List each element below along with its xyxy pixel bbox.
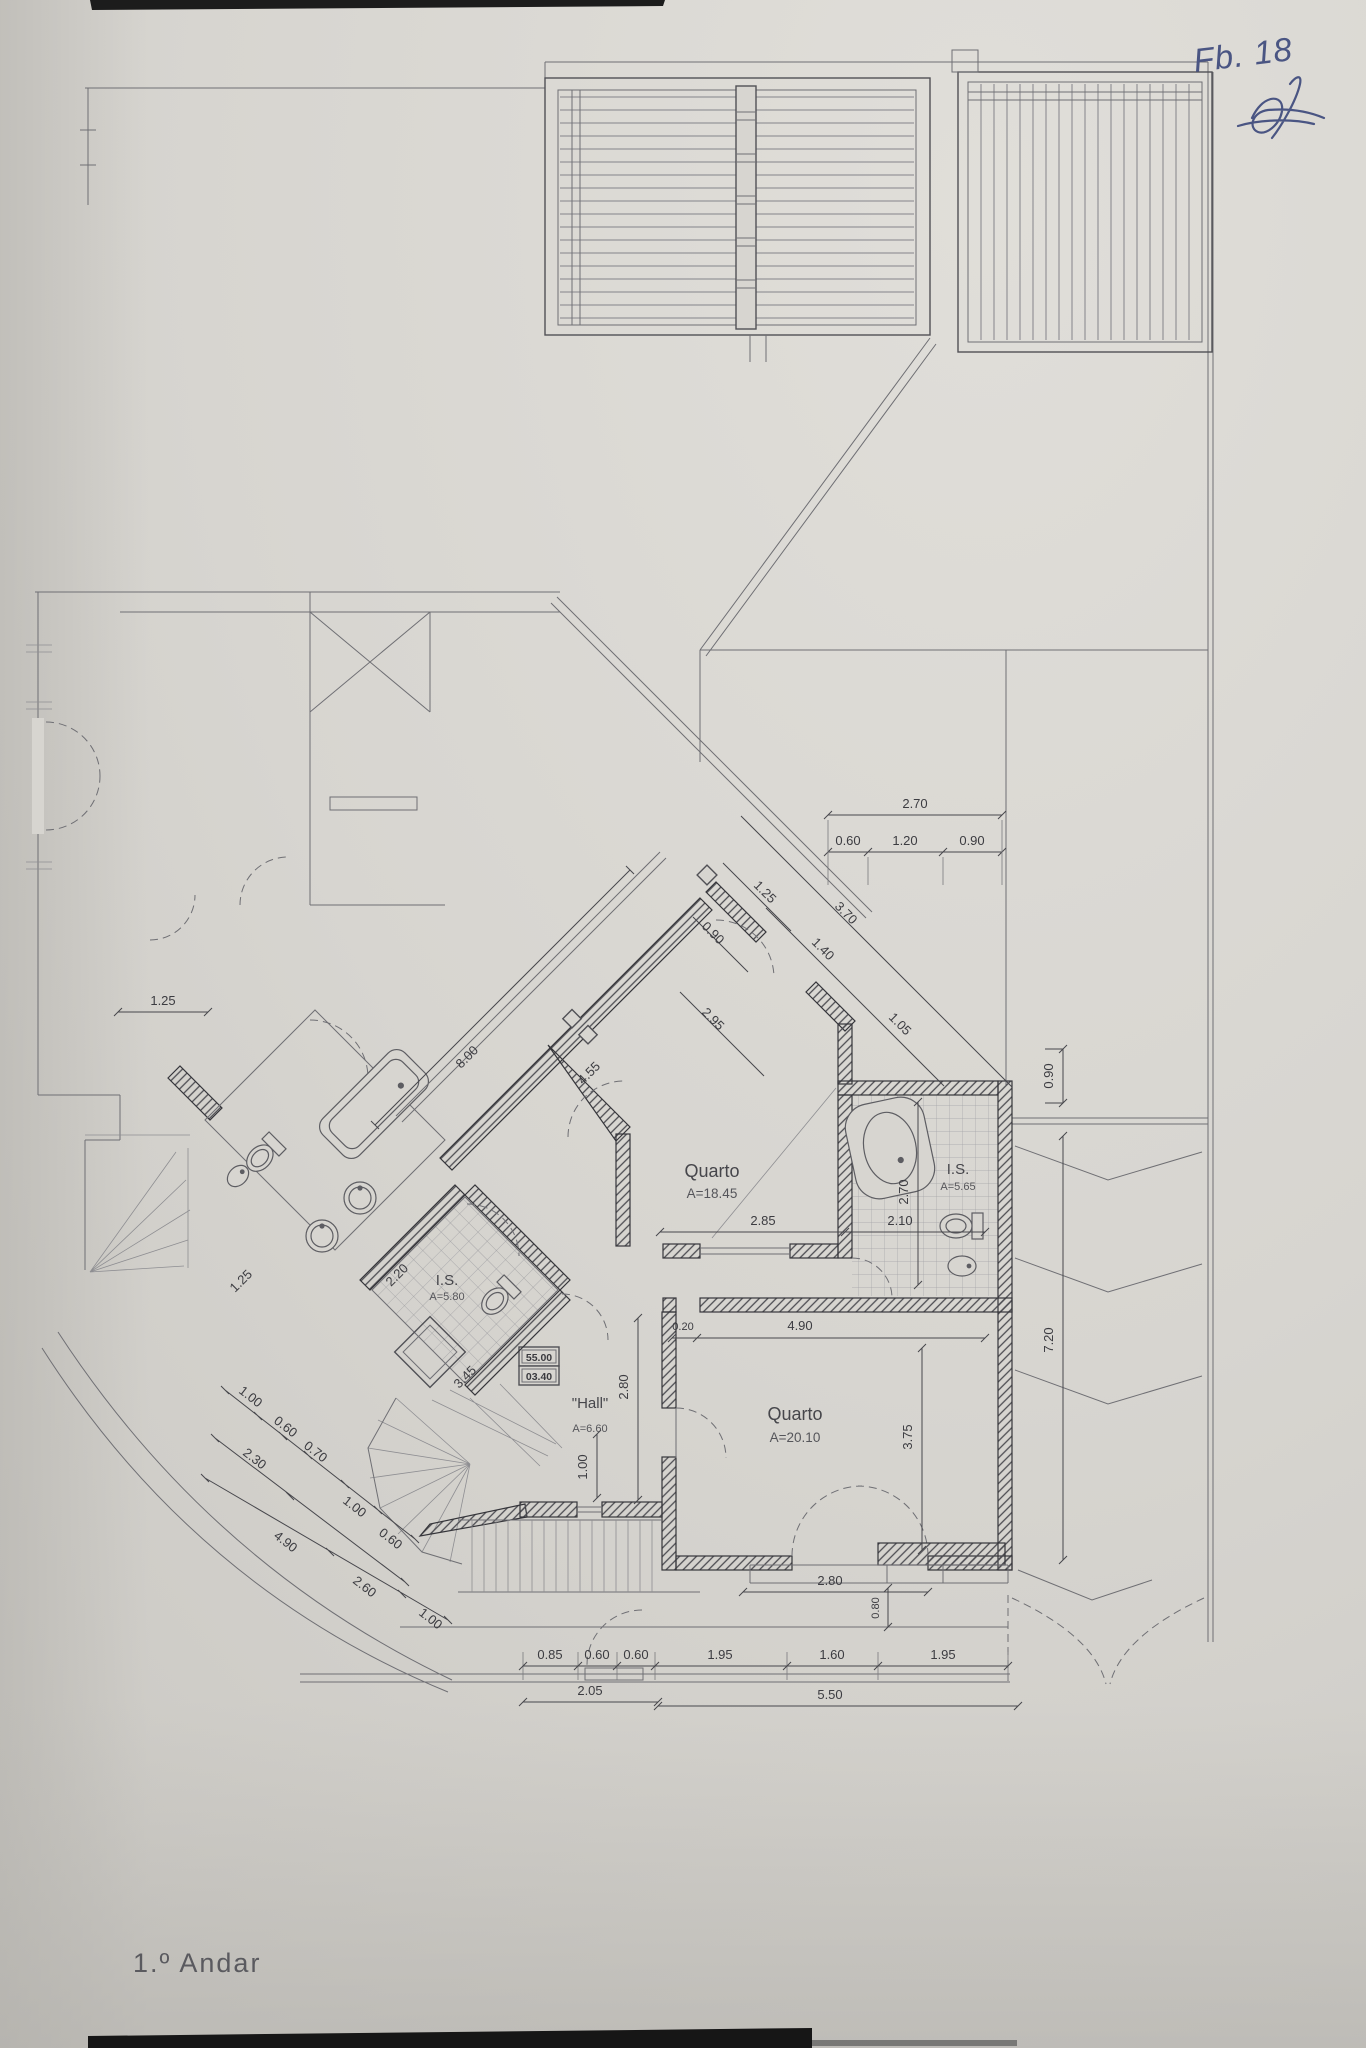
dim-090c: 0.90 [1041, 1063, 1056, 1088]
dim-280b: 2.80 [817, 1573, 842, 1588]
pergola-left [545, 78, 930, 362]
room-label-hall: "Hall" [572, 1395, 609, 1412]
dim-720: 7.20 [1041, 1327, 1056, 1352]
room-area-hall: A=6.60 [572, 1423, 607, 1435]
room-label-is1: I.S. [436, 1272, 459, 1289]
bidet [948, 1256, 976, 1276]
dim-205: 2.05 [577, 1683, 602, 1698]
room-label-quarto1: Quarto [684, 1161, 739, 1181]
dim-080: 0.80 [870, 1597, 882, 1618]
dim-490a: 4.90 [787, 1318, 812, 1333]
dim-285: 2.85 [750, 1213, 775, 1228]
floor-plan-drawing: Quarto A=18.45 I.S. A=5.65 Quarto A=20.1… [0, 0, 1366, 2048]
dim-280v: 2.80 [616, 1374, 631, 1399]
dim-375: 3.75 [900, 1424, 915, 1449]
dim-020: 0.20 [672, 1321, 693, 1333]
room-area-is2: A=5.65 [940, 1181, 975, 1193]
dim-195a: 1.95 [707, 1647, 732, 1662]
room-label-quarto2: Quarto [767, 1404, 822, 1424]
dim-125a: 1.25 [150, 993, 175, 1008]
levels-box: 55.00 03.40 [519, 1347, 559, 1385]
room-area-is1: A=5.80 [429, 1291, 464, 1303]
dim-060a: 0.60 [584, 1647, 609, 1662]
washbasin [306, 1220, 338, 1252]
dim-195b: 1.95 [930, 1647, 955, 1662]
pergola-right [952, 50, 1212, 352]
washbasin [344, 1182, 376, 1214]
dim-550: 5.50 [817, 1687, 842, 1702]
dim-120: 1.20 [892, 833, 917, 848]
dim-060b: 0.60 [623, 1647, 648, 1662]
level-upper: 55.00 [526, 1352, 552, 1364]
dim-270: 2.70 [902, 796, 927, 811]
dim-210: 2.10 [887, 1213, 912, 1228]
room-area-quarto2: A=20.10 [770, 1430, 821, 1445]
dim-090: 0.90 [959, 833, 984, 848]
room-label-is2: I.S. [947, 1161, 970, 1178]
dim-085: 0.85 [537, 1647, 562, 1662]
toilet [940, 1213, 983, 1239]
scanned-floor-plan-page: Quarto A=18.45 I.S. A=5.65 Quarto A=20.1… [0, 0, 1366, 2048]
dim-100v: 1.00 [575, 1454, 590, 1479]
dim-060: 0.60 [835, 833, 860, 848]
dim-270v: 2.70 [896, 1179, 911, 1204]
plan-title: 1.º Andar [133, 1948, 261, 1978]
level-lower: 03.40 [526, 1371, 552, 1383]
dim-160: 1.60 [819, 1647, 844, 1662]
room-area-quarto1: A=18.45 [687, 1186, 738, 1201]
